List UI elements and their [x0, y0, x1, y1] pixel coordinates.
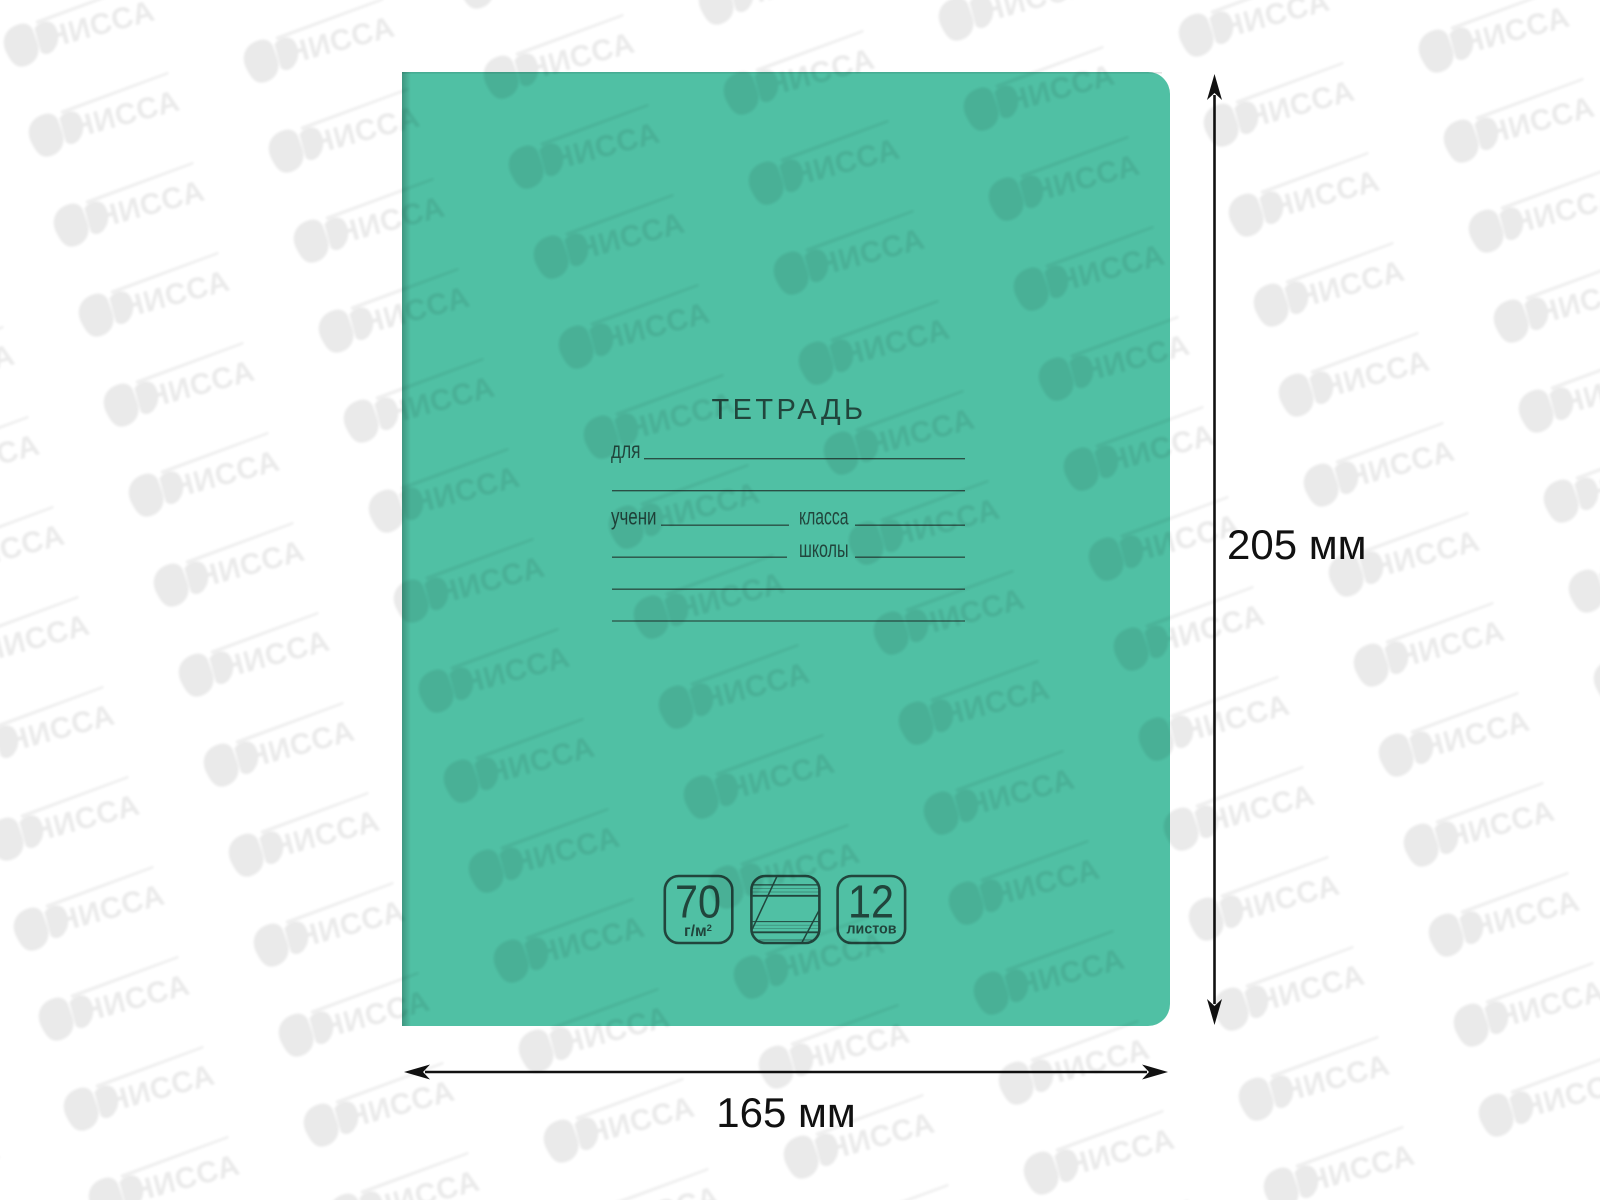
svg-text:класса: класса: [799, 504, 849, 530]
svg-text:школы: школы: [799, 536, 849, 562]
